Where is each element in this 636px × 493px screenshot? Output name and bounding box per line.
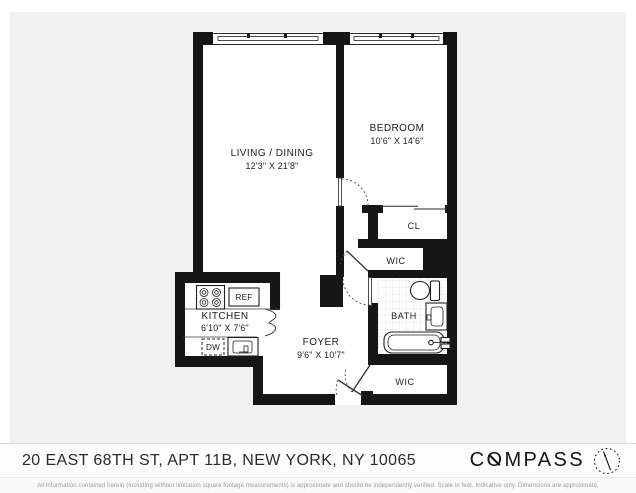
floor-plan-page: REF DW <box>0 0 636 492</box>
dishwasher-icon: DW <box>202 339 224 355</box>
bedroom-window <box>350 32 443 45</box>
kitchen-dims: 6'10" X 7'6" <box>201 323 249 333</box>
wic-upper-label: WIC <box>386 256 405 266</box>
compass-logo: COMPASS <box>470 446 636 476</box>
closet-label: CL <box>408 221 421 231</box>
bath-sink-icon <box>426 303 447 330</box>
property-address: 20 EAST 68TH ST, APT 11B, NEW YORK, NY 1… <box>0 452 416 470</box>
floor-plan-drawing: REF DW <box>0 0 636 443</box>
bathtub-icon <box>384 332 450 353</box>
living-window <box>213 32 323 45</box>
compass-dial-icon <box>592 446 622 476</box>
wordmark-slashed-o: O <box>486 449 504 472</box>
foyer-dims: 9'6" X 10'7" <box>297 350 345 360</box>
wic-lower-label: WIC <box>395 377 414 387</box>
toilet-icon <box>411 281 440 301</box>
refrigerator-label: REF <box>236 293 253 302</box>
closet-sliding-door <box>382 205 447 213</box>
wordmark-c: C <box>470 449 487 472</box>
refrigerator-icon: REF <box>229 288 259 306</box>
stove-icon <box>197 286 225 310</box>
compass-wordmark: COMPASS <box>470 449 585 472</box>
disclaimer-text: All information contained herein (includ… <box>37 483 599 489</box>
living-label: LIVING / DINING <box>231 148 314 159</box>
dishwasher-label: DW <box>206 343 220 352</box>
bath-label: BATH <box>391 311 417 321</box>
bedroom-label: BEDROOM <box>370 123 425 134</box>
wordmark-mpass: MPASS <box>504 449 585 472</box>
bedroom-dims: 10'6" X 14'6" <box>371 136 424 146</box>
living-dims: 12'3" X 21'8" <box>246 161 299 171</box>
kitchen-label: KITCHEN <box>201 311 248 322</box>
disclaimer-strip: All information contained herein (includ… <box>0 477 636 493</box>
kitchen-sink-icon <box>228 338 258 357</box>
foyer-label: FOYER <box>303 337 340 348</box>
footer: 20 EAST 68TH ST, APT 11B, NEW YORK, NY 1… <box>0 444 636 477</box>
